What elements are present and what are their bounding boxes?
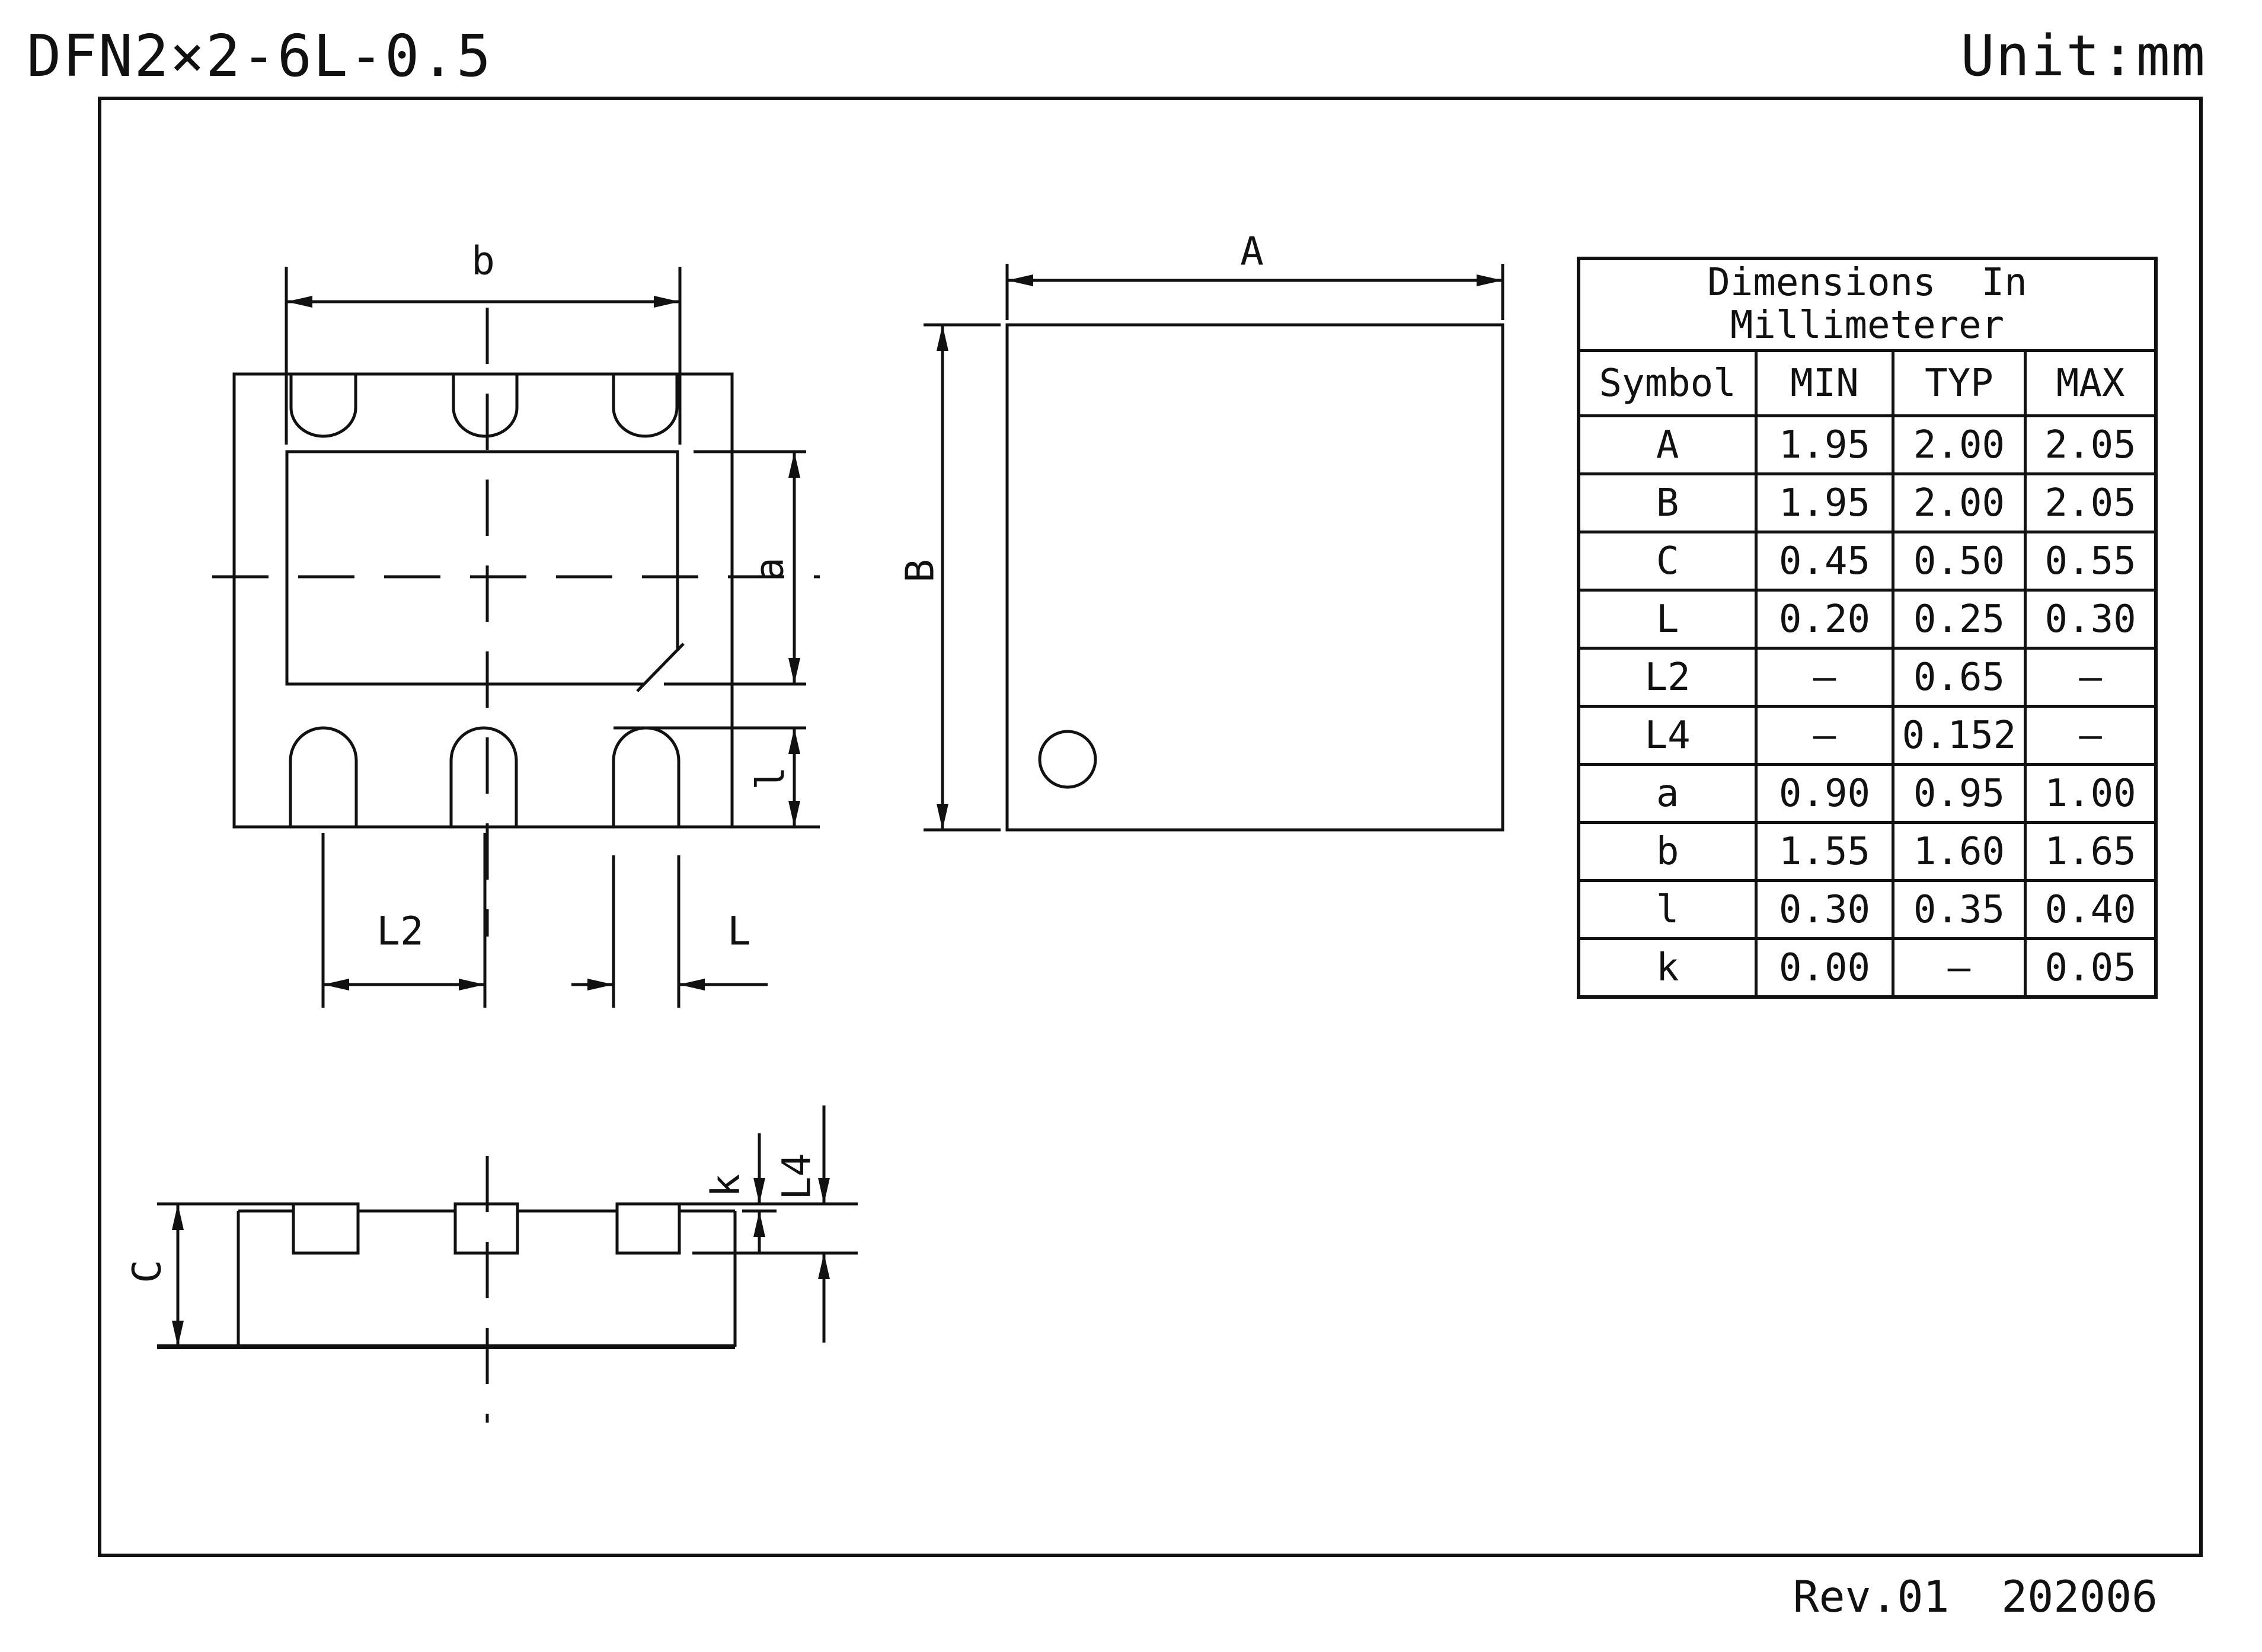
value-cell: 1.65 <box>2024 821 2154 879</box>
value-cell: 1.95 <box>1755 472 1891 531</box>
pad <box>614 374 677 436</box>
column-header: Symbol <box>1580 352 1755 414</box>
dim-label-l: l <box>748 766 794 790</box>
package-outline <box>234 374 732 827</box>
value-cell: 0.90 <box>1755 763 1891 821</box>
value-cell: 0.95 <box>1892 763 2024 821</box>
pad <box>451 728 516 827</box>
terminal <box>617 1204 679 1253</box>
exposed-pad <box>287 452 678 684</box>
dim-label-A: A <box>1240 229 1264 274</box>
symbol-cell: l <box>1580 879 1755 937</box>
pad <box>290 728 356 827</box>
page-title: DFN2×2-6L-0.5 <box>27 23 492 90</box>
value-cell: 1.60 <box>1892 821 2024 879</box>
value-cell: – <box>1755 705 1891 763</box>
table-grid: SymbolMINTYPMAXA1.952.002.05B1.952.002.0… <box>1580 352 2154 995</box>
value-cell: 0.30 <box>1755 879 1891 937</box>
dim-label-C: C <box>124 1260 170 1283</box>
pin1-marker <box>1040 731 1095 787</box>
symbol-cell: L <box>1580 589 1755 647</box>
column-header: MAX <box>2024 352 2154 414</box>
dim-label-L2: L2 <box>376 909 423 954</box>
column-header: TYP <box>1892 352 2024 414</box>
value-cell: – <box>1892 937 2024 995</box>
symbol-cell: L2 <box>1580 647 1755 705</box>
dim-label-L4: L4 <box>774 1153 820 1200</box>
pad <box>614 728 679 827</box>
value-cell: 2.00 <box>1892 414 2024 472</box>
symbol-cell: b <box>1580 821 1755 879</box>
value-cell: 2.00 <box>1892 472 2024 531</box>
dim-label-B: B <box>897 559 943 583</box>
symbol-cell: C <box>1580 531 1755 589</box>
value-cell: – <box>2024 647 2154 705</box>
value-cell: 0.55 <box>2024 531 2154 589</box>
table-title: Dimensions In Millimeterer <box>1580 260 2154 352</box>
table-title-line1: Dimensions In <box>1707 262 2027 305</box>
symbol-cell: L4 <box>1580 705 1755 763</box>
terminal <box>293 1204 358 1253</box>
symbol-cell: a <box>1580 763 1755 821</box>
figure-bottom-view <box>202 213 842 1020</box>
value-cell: 2.05 <box>2024 414 2154 472</box>
value-cell: 0.35 <box>1892 879 2024 937</box>
datasheet-page: DFN2×2-6L-0.5 Unit:mm Rev.01 202006 <box>0 0 2262 1652</box>
value-cell: 0.50 <box>1892 531 2024 589</box>
value-cell: 1.55 <box>1755 821 1891 879</box>
value-cell: 0.65 <box>1892 647 2024 705</box>
table-title-line2: Millimeterer <box>1730 305 2004 347</box>
value-cell: 2.05 <box>2024 472 2154 531</box>
dim-label-b: b <box>471 238 495 284</box>
value-cell: 0.25 <box>1892 589 2024 647</box>
revision-note: Rev.01 202006 <box>1793 1572 2158 1622</box>
symbol-cell: k <box>1580 937 1755 995</box>
symbol-cell: A <box>1580 414 1755 472</box>
value-cell: – <box>1755 647 1891 705</box>
column-header: MIN <box>1755 352 1891 414</box>
figure-side-view <box>107 1067 889 1452</box>
symbol-cell: B <box>1580 472 1755 531</box>
pad <box>453 374 517 436</box>
value-cell: 0.20 <box>1755 589 1891 647</box>
figure-top-view <box>889 225 1577 877</box>
dim-label-a: a <box>747 557 793 581</box>
dim-label-k: k <box>703 1174 749 1197</box>
dim-label-L: L <box>727 909 751 954</box>
unit-note: Unit:mm <box>1961 24 2206 89</box>
value-cell: 0.45 <box>1755 531 1891 589</box>
value-cell: 0.152 <box>1892 705 2024 763</box>
package-outline <box>1007 325 1503 830</box>
value-cell: 1.95 <box>1755 414 1891 472</box>
value-cell: 1.00 <box>2024 763 2154 821</box>
value-cell: 0.40 <box>2024 879 2154 937</box>
dimensions-table: Dimensions In Millimeterer SymbolMINTYPM… <box>1577 257 2158 999</box>
value-cell: 0.30 <box>2024 589 2154 647</box>
value-cell: – <box>2024 705 2154 763</box>
value-cell: 0.05 <box>2024 937 2154 995</box>
value-cell: 0.00 <box>1755 937 1891 995</box>
pad <box>291 374 356 436</box>
